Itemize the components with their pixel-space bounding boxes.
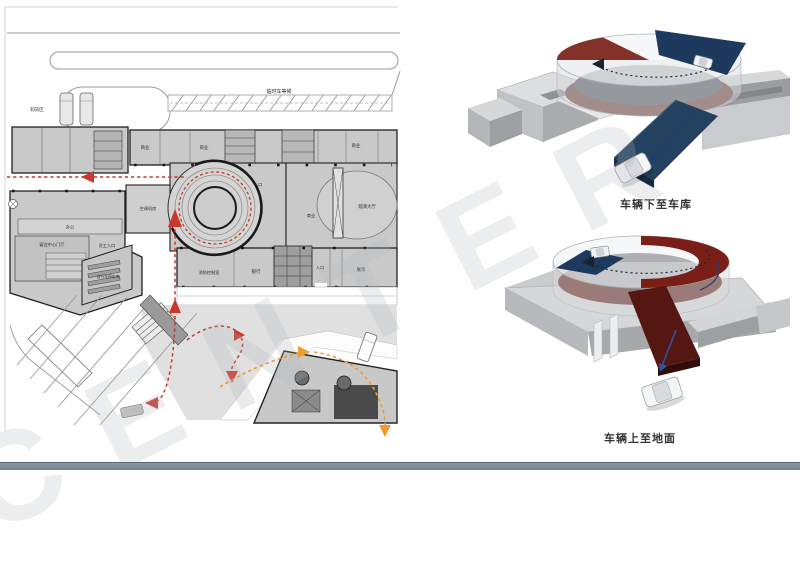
label-bank: 银行 <box>252 268 261 275</box>
render-down-to-garage <box>468 30 790 190</box>
theatre-hall <box>317 171 397 239</box>
planter <box>337 376 351 390</box>
caption-down-to-garage: 车辆下至车库 <box>586 196 726 212</box>
label-fire-control: 消防控制室 <box>199 269 220 276</box>
label-shop-2: 商业 <box>200 144 209 151</box>
label-shop-4: 商业 <box>307 212 315 219</box>
label-banquet-lobby: 宴会中心门厅 <box>39 241 64 248</box>
axon-renders <box>430 0 800 460</box>
label-entrance: 入口 <box>316 265 324 270</box>
floor-plan: 临时车等候 卸货区 商业 商业 商业 <box>0 0 420 460</box>
bus-icon <box>80 93 93 125</box>
spiral-ramp <box>168 161 262 255</box>
bus-icon <box>60 93 73 125</box>
label-shop-3: 商业 <box>352 142 361 149</box>
bottom-bar <box>0 462 800 470</box>
car-icon-deck-2 <box>590 246 609 258</box>
caption-up-to-ground: 车辆上至地面 <box>570 430 710 446</box>
render-up-to-ground <box>505 236 790 414</box>
label-unloading-area: 卸货区 <box>30 106 44 113</box>
label-shop-1: 商业 <box>141 144 150 151</box>
label-temp-waiting: 临时车等候 <box>266 88 291 95</box>
drop-off-strip: 临时车等候 <box>168 88 392 111</box>
label-office: 办公 <box>66 224 75 231</box>
lower-plaza <box>142 287 397 423</box>
car-icon-bottom-2 <box>640 376 686 414</box>
planter <box>295 371 309 385</box>
loading-yard: 卸货区 <box>30 93 93 125</box>
label-bicycle-parking: 自行车停车库 <box>97 274 120 279</box>
label-theatre: 观演大厅 <box>358 203 376 210</box>
label-hvac: 空调机房 <box>140 205 157 212</box>
car-icon-plan <box>120 404 144 418</box>
